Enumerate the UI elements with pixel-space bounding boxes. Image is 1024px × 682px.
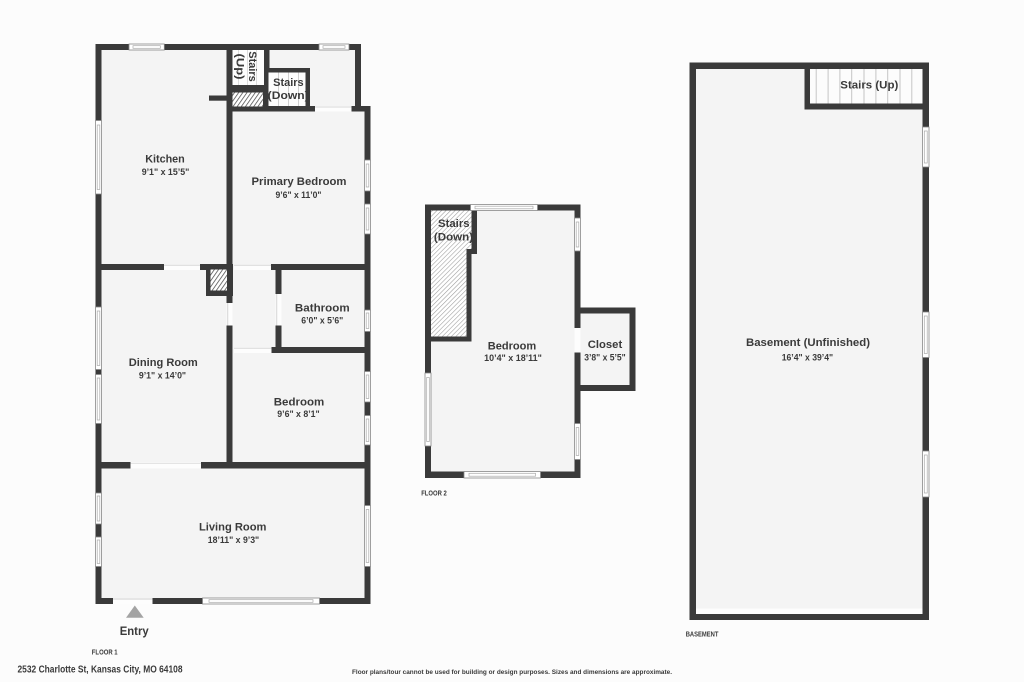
- svg-text:FLOOR 2: FLOOR 2: [421, 491, 447, 498]
- svg-text:3’8" x 5’5": 3’8" x 5’5": [584, 352, 625, 363]
- svg-text:Living Room: Living Room: [199, 522, 267, 534]
- svg-text:Stairs(Up): Stairs(Up): [234, 51, 259, 82]
- svg-text:Closet: Closet: [588, 339, 623, 351]
- svg-text:Entry: Entry: [120, 624, 149, 638]
- svg-text:Floor plans/tour cannot be use: Floor plans/tour cannot be used for buil…: [352, 669, 672, 676]
- svg-text:Dining Room: Dining Room: [129, 357, 198, 369]
- svg-text:Bedroom: Bedroom: [274, 397, 325, 409]
- svg-text:9’1" x 15’5": 9’1" x 15’5": [142, 167, 190, 178]
- svg-text:6’0" x 5’6": 6’0" x 5’6": [301, 315, 343, 326]
- svg-text:2532 Charlotte St, Kansas City: 2532 Charlotte St, Kansas City, MO 64108: [18, 665, 183, 676]
- svg-text:18’11" x 9’3": 18’11" x 9’3": [208, 535, 259, 546]
- svg-text:BASEMENT: BASEMENT: [686, 632, 719, 639]
- svg-text:16’4" x 39’4": 16’4" x 39’4": [782, 353, 833, 364]
- svg-text:10’4" x 18’11": 10’4" x 18’11": [484, 353, 542, 364]
- svg-text:Stairs: Stairs: [273, 77, 304, 89]
- svg-text:Bathroom: Bathroom: [295, 302, 350, 314]
- svg-text:Kitchen: Kitchen: [145, 154, 185, 166]
- svg-text:Stairs: Stairs: [438, 218, 470, 230]
- svg-text:9’1" x 14’0": 9’1" x 14’0": [139, 370, 186, 381]
- svg-text:9’6" x 11’0": 9’6" x 11’0": [276, 190, 322, 201]
- svg-text:Basement (Unfinished): Basement (Unfinished): [746, 337, 870, 349]
- svg-text:Primary Bedroom: Primary Bedroom: [252, 176, 347, 188]
- svg-text:Bedroom: Bedroom: [488, 341, 537, 353]
- svg-text:(Down): (Down): [268, 90, 309, 102]
- svg-text:Stairs (Up): Stairs (Up): [840, 80, 898, 92]
- svg-text:9’6" x 8’1": 9’6" x 8’1": [277, 409, 319, 420]
- svg-text:(Down): (Down): [434, 231, 474, 243]
- svg-text:FLOOR 1: FLOOR 1: [92, 649, 118, 656]
